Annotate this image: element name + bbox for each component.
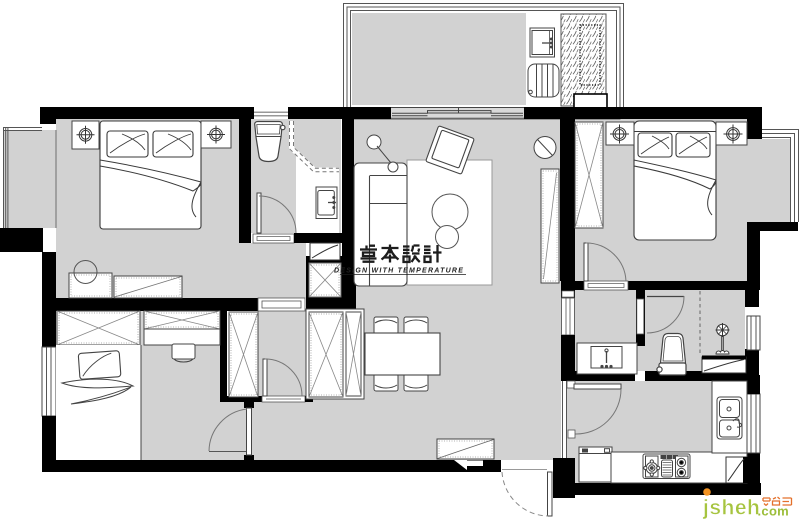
svg-text:DESIGN WITH TEMPERATURE: DESIGN WITH TEMPERATURE — [334, 268, 464, 275]
svg-text:.com: .com — [758, 504, 790, 519]
svg-text:jsheh: jsheh — [702, 497, 760, 519]
